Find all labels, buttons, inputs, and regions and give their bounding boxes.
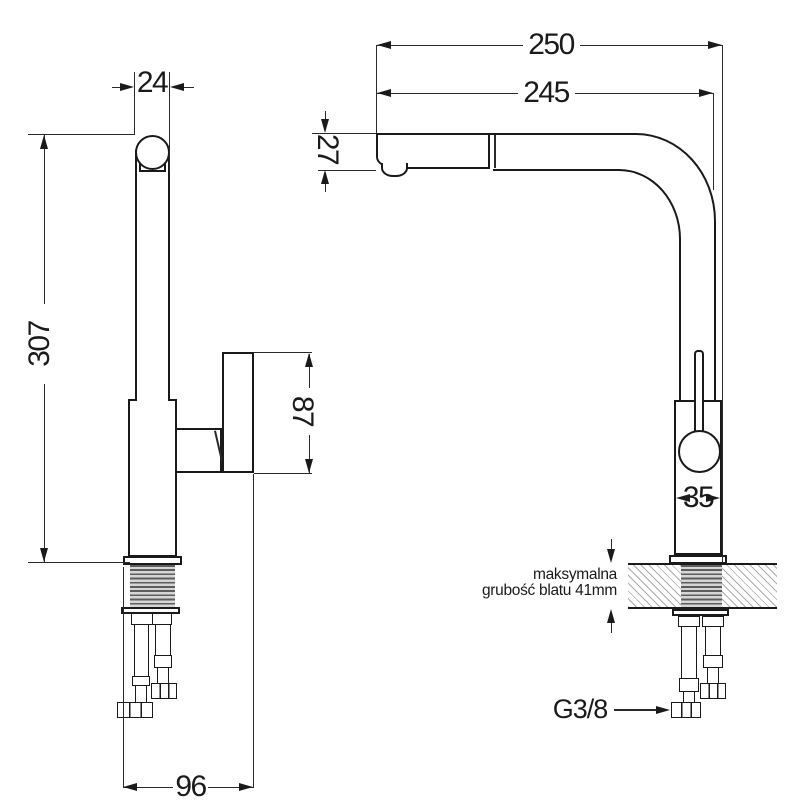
- dim-245-line-right: [575, 93, 713, 94]
- dim-245-arrow-left: [377, 89, 391, 97]
- dim-87-ext-bottom: [254, 473, 312, 474]
- side-view-spout-pipe: [135, 150, 170, 401]
- countertop-note: maksymalna grubość blatu 41mm: [455, 567, 617, 599]
- dim-87-ext-top: [254, 352, 312, 353]
- side-view-hose-right-tube: [155, 624, 171, 656]
- dim-307-arrow-down: [40, 548, 48, 562]
- dim-27-stub-top: [325, 111, 326, 119]
- dim-96-arrow-left: [123, 783, 137, 791]
- dim-total-height: 307: [25, 304, 55, 384]
- side-view-mounting-thread: [130, 565, 175, 607]
- dim-87-arrow-up: [305, 353, 313, 367]
- front-view-arm-inner-edge: [493, 169, 681, 400]
- dim-245-line-left: [377, 93, 518, 94]
- front-view-aerator-outlet: [381, 163, 408, 177]
- side-view-base-plate: [123, 556, 182, 565]
- front-view-spray-head-divider: [494, 135, 496, 168]
- side-view-spout-outlet-circle: [135, 135, 170, 170]
- thread-label-arrow: [656, 706, 670, 714]
- dim-96-ext-right: [253, 474, 254, 788]
- dim-spout-drop: 27: [313, 131, 341, 167]
- dim-spout-top-width: 24: [134, 68, 170, 98]
- front-view-hose-right-tube: [705, 626, 721, 656]
- front-view-hose-left-coupling: [679, 678, 699, 692]
- dim-245-arrow-right: [699, 89, 713, 97]
- dim-handle-length: 87: [287, 391, 317, 431]
- front-view-mounting-washer: [672, 609, 729, 616]
- side-view-hose-right-nut: [151, 683, 177, 699]
- dim-96-ext-left: [123, 567, 124, 788]
- dim-24-arrow-left: [120, 83, 134, 91]
- dim-245-ext-right: [713, 93, 714, 190]
- dim-307-line-upper: [44, 135, 45, 307]
- countertop-arrow-down: [607, 549, 615, 563]
- countertop-note-line1: maksymalna: [455, 567, 617, 583]
- front-view-handle-circle: [678, 430, 721, 473]
- dim-307-ext-bottom: [28, 562, 130, 563]
- dim-24-arrow-right: [170, 83, 184, 91]
- front-view-hose-right-nut: [700, 683, 726, 699]
- dim-307-arrow-up: [40, 135, 48, 149]
- dim-250-line-left: [377, 45, 523, 46]
- side-view-hose-left-tube: [134, 624, 149, 677]
- front-view-hose-right-stub: [707, 667, 719, 684]
- countertop-arrow-up: [607, 609, 615, 623]
- dim-base-depth: 96: [168, 772, 213, 800]
- dim-250-ext-right: [722, 45, 723, 563]
- front-view-mounting-thread: [681, 565, 722, 607]
- dim-27-arrow-up: [321, 170, 329, 184]
- dim-24-stub-right: [184, 87, 194, 88]
- countertop-arrow-stub-bottom: [611, 623, 612, 633]
- countertop-note-line2: grubość blatu 41mm: [455, 583, 617, 599]
- front-view-hose-left-tube: [681, 626, 697, 679]
- side-view-handle-lever: [222, 352, 254, 473]
- thread-size-label: G3/8: [548, 695, 612, 723]
- dim-27-stub-bottom: [325, 184, 326, 192]
- front-view-hose-left-nut: [671, 702, 701, 718]
- dim-total-reach: 250: [522, 31, 580, 59]
- side-view-body: [128, 399, 177, 557]
- thread-label-leader-line: [614, 709, 656, 711]
- dim-250-arrow-right: [708, 41, 722, 49]
- dim-307-line-lower: [44, 380, 45, 562]
- side-view-hose-right-stub: [157, 667, 169, 684]
- side-view-hose-left-stub: [135, 685, 147, 703]
- dim-250-arrow-left: [377, 41, 391, 49]
- dim-250-line-right: [580, 45, 722, 46]
- countertop-arrow-stub-top: [611, 539, 612, 549]
- dim-87-arrow-down: [305, 459, 313, 473]
- dim-spout-reach: 245: [517, 79, 575, 107]
- faucet-technical-drawing: 24 307 87 96 250 245 27 35 maks: [0, 0, 800, 800]
- dim-96-arrow-right: [239, 783, 253, 791]
- front-view-handle-stem: [694, 350, 704, 432]
- dim-body-width: 35: [679, 484, 717, 512]
